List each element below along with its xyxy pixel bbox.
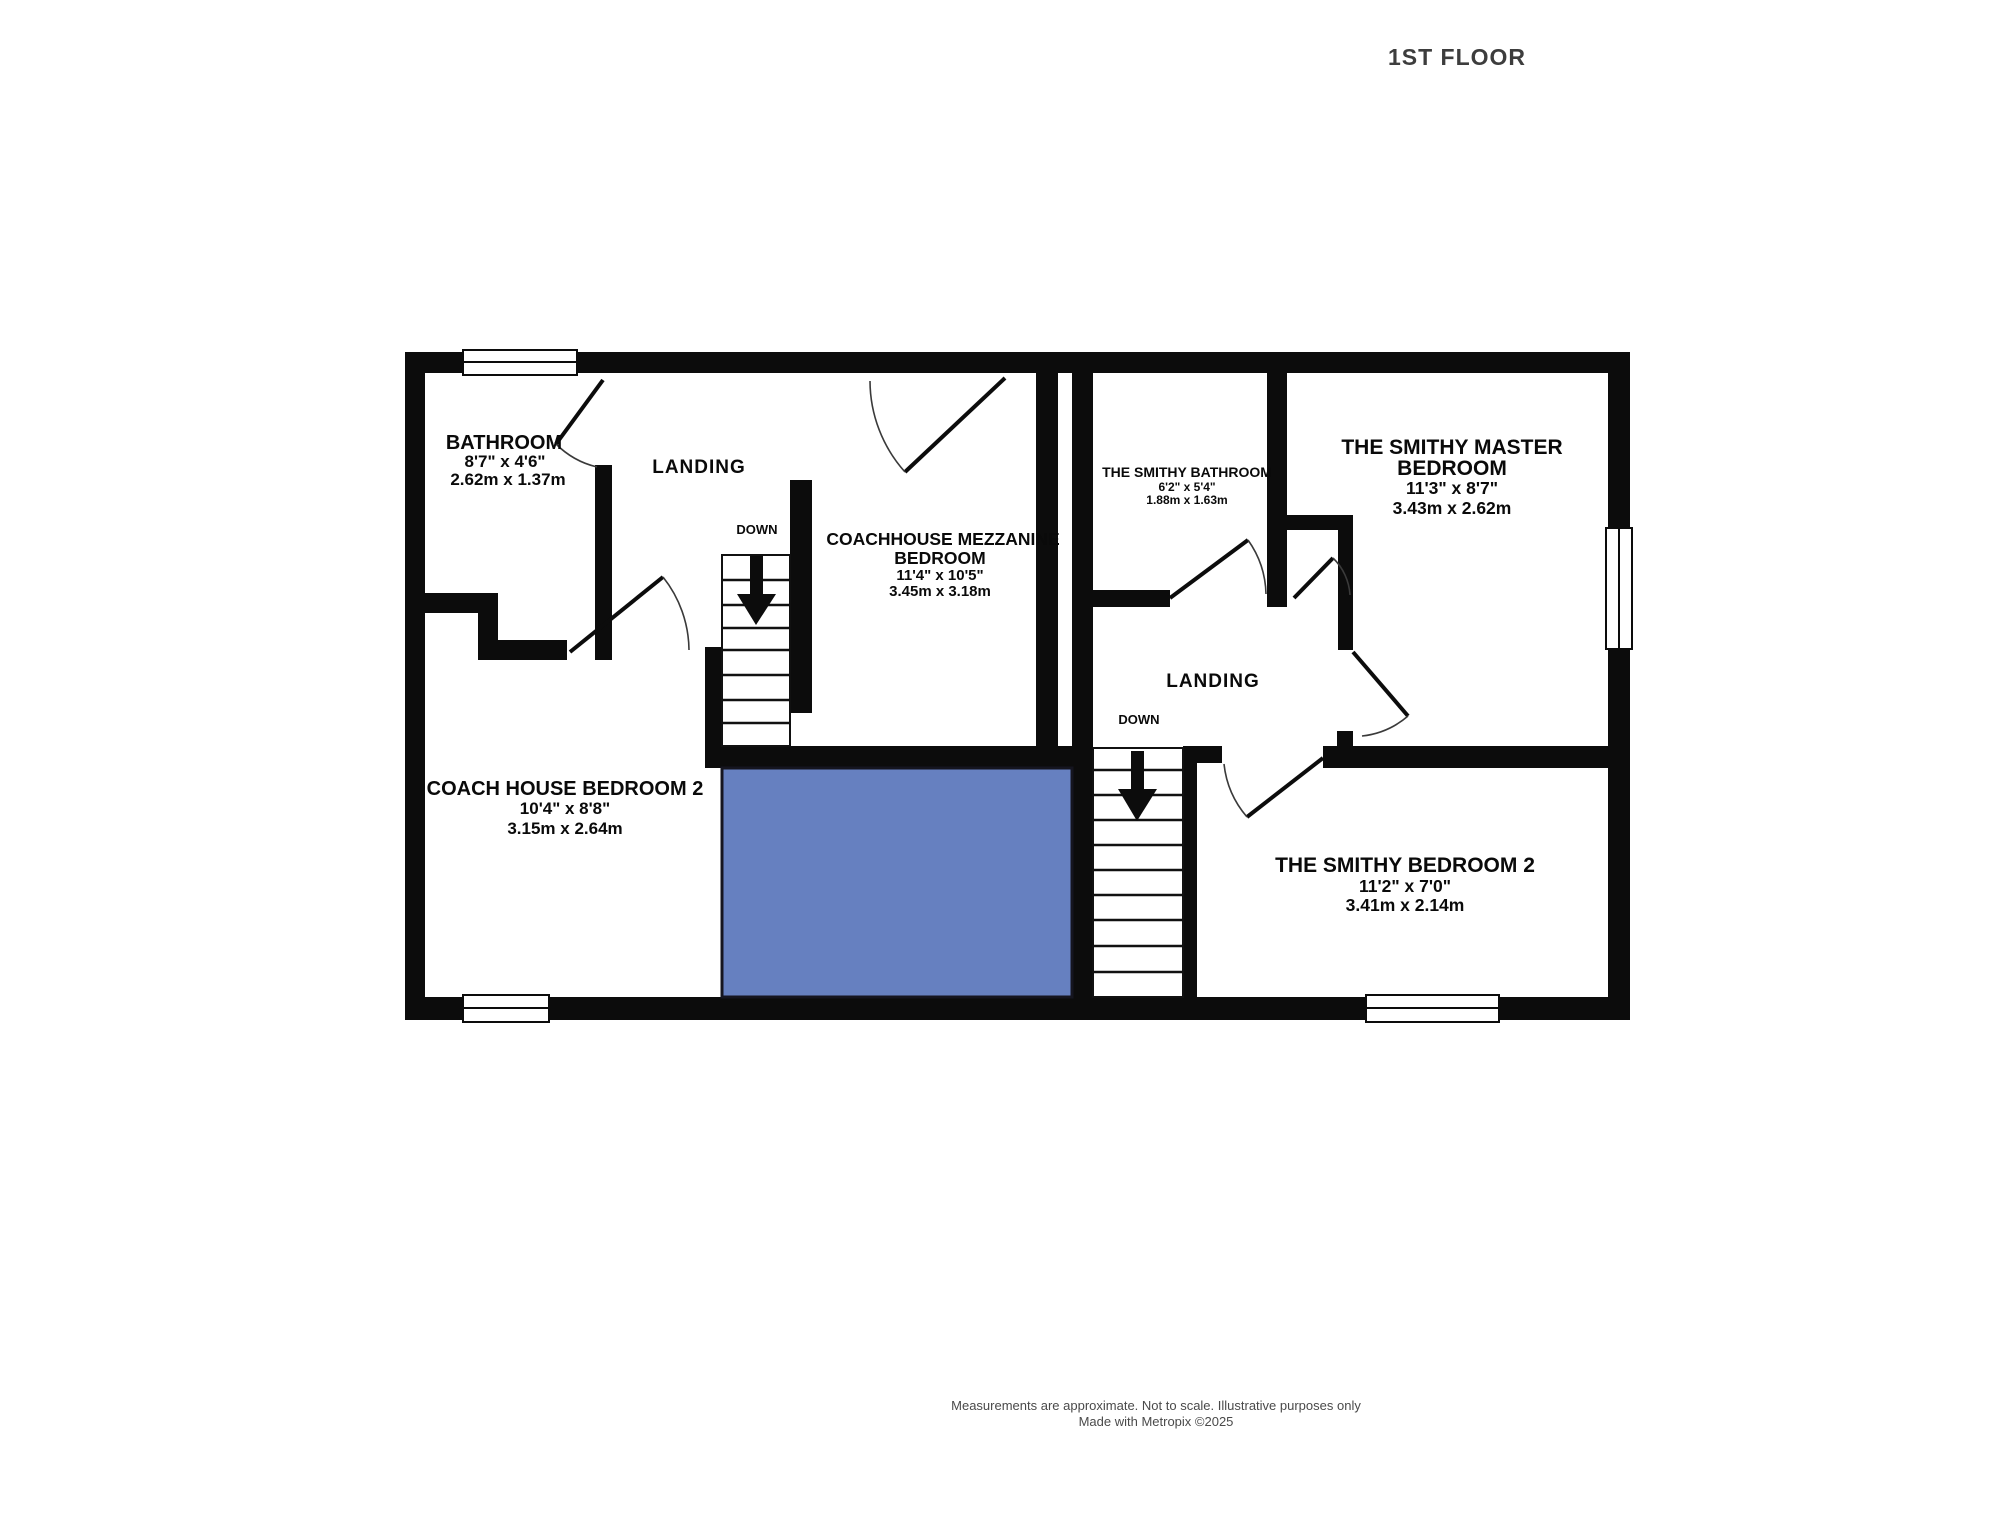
door-smithy-bathroom bbox=[1170, 540, 1266, 598]
room-dim-imperial: 8'7" x 4'6" bbox=[465, 452, 546, 471]
disclaimer-line2: Made with Metropix ©2025 bbox=[1079, 1414, 1234, 1429]
room-dim-metric: 1.88m x 1.63m bbox=[1146, 493, 1227, 507]
door-coach-bedroom2 bbox=[570, 577, 689, 652]
room-dim-metric: 3.45m x 3.18m bbox=[889, 583, 991, 600]
room-label-mezzanine: COACHHOUSE MEZZANINE BEDROOM 11'4" x 10'… bbox=[826, 529, 1059, 600]
room-label-bathroom: BATHROOM 8'7" x 4'6" 2.62m x 1.37m bbox=[446, 432, 566, 489]
room-dim-imperial: 10'4" x 8'8" bbox=[520, 799, 610, 818]
stairs-left bbox=[722, 555, 790, 746]
room-label-smithy-master: THE SMITHY MASTER BEDROOM 11'3" x 8'7" 3… bbox=[1341, 436, 1562, 518]
landing-right-label: LANDING bbox=[1166, 671, 1260, 692]
room-label-coach-bedroom2: COACH HOUSE BEDROOM 2 10'4" x 8'8" 3.15m… bbox=[427, 778, 704, 838]
floor-plan-canvas: 1ST FLOOR bbox=[0, 0, 2000, 1535]
room-name: COACHHOUSE MEZZANINE bbox=[826, 529, 1059, 549]
door-smithy-bedroom2 bbox=[1224, 758, 1323, 817]
window-top-left bbox=[463, 350, 577, 375]
landing-left-label: LANDING bbox=[652, 457, 746, 478]
room-label-smithy-bathroom: THE SMITHY BATHROOM 6'2" x 5'4" 1.88m x … bbox=[1102, 464, 1272, 507]
disclaimer-line1: Measurements are approximate. Not to sca… bbox=[951, 1398, 1361, 1413]
room-dim-imperial: 6'2" x 5'4" bbox=[1158, 480, 1215, 494]
window-bottom-left bbox=[463, 995, 549, 1022]
room-dim-imperial: 11'3" x 8'7" bbox=[1406, 478, 1498, 498]
room-label-smithy-bedroom2: THE SMITHY BEDROOM 2 11'2" x 7'0" 3.41m … bbox=[1275, 854, 1535, 915]
down-left-label: DOWN bbox=[736, 522, 777, 537]
floor-title: 1ST FLOOR bbox=[1388, 44, 1526, 70]
door-landing-mezzanine bbox=[870, 378, 1005, 472]
room-name: BATHROOM bbox=[446, 432, 562, 454]
stairs-right bbox=[1093, 748, 1183, 997]
footer-disclaimer: Measurements are approximate. Not to sca… bbox=[951, 1398, 1361, 1429]
room-dim-metric: 3.43m x 2.62m bbox=[1393, 498, 1512, 518]
void-area bbox=[722, 768, 1072, 997]
room-name: THE SMITHY BEDROOM 2 bbox=[1275, 854, 1535, 877]
down-right-label: DOWN bbox=[1118, 712, 1159, 727]
room-dim-metric: 3.15m x 2.64m bbox=[507, 819, 622, 838]
room-dim-imperial: 11'2" x 7'0" bbox=[1359, 876, 1451, 896]
door-bathroom-left bbox=[556, 380, 603, 467]
floor-plan-page: 1ST FLOOR bbox=[0, 0, 2000, 1535]
room-name: THE SMITHY BATHROOM bbox=[1102, 464, 1272, 480]
room-name: THE SMITHY MASTER bbox=[1341, 436, 1562, 459]
door-smithy-master bbox=[1353, 652, 1408, 736]
window-right-wall bbox=[1606, 528, 1632, 649]
room-name: BEDROOM bbox=[894, 548, 985, 568]
room-dim-metric: 2.62m x 1.37m bbox=[450, 470, 565, 489]
room-name: COACH HOUSE BEDROOM 2 bbox=[427, 778, 704, 800]
room-dim-imperial: 11'4" x 10'5" bbox=[896, 567, 983, 584]
room-name: BEDROOM bbox=[1397, 457, 1507, 480]
window-bottom-right bbox=[1366, 995, 1499, 1022]
room-dim-metric: 3.41m x 2.14m bbox=[1346, 895, 1465, 915]
